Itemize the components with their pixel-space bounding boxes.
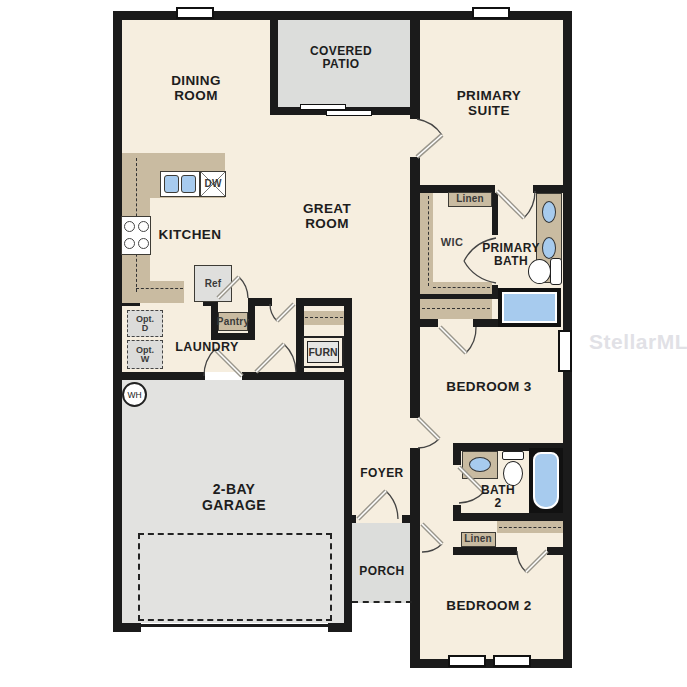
opt-washer-box: Opt. W — [127, 340, 163, 369]
room-label-bath2: BATH 2 — [481, 484, 515, 511]
window — [448, 655, 486, 667]
furnace-unit: FURN — [302, 336, 344, 368]
wall — [453, 513, 563, 521]
opt-washer-label: Opt. W — [136, 346, 154, 364]
linen-bottom-label: Linen — [464, 533, 492, 544]
toilet-tank — [550, 258, 562, 285]
opt-dryer-box: Opt. D — [127, 310, 163, 337]
wall — [113, 623, 141, 632]
wall — [412, 659, 572, 668]
refrigerator-label: Ref — [205, 278, 222, 289]
garage-door-line — [141, 624, 328, 627]
shelf-dash — [433, 287, 490, 288]
wall — [242, 372, 352, 380]
wic-shelf — [420, 282, 492, 294]
room-label-dining: DINING ROOM — [171, 73, 221, 103]
wic-shelf — [420, 193, 433, 294]
hall-closet-shelf — [420, 299, 492, 319]
wall — [328, 623, 352, 632]
garage-door-dashed — [138, 533, 332, 621]
burner — [138, 221, 149, 232]
wall — [533, 185, 563, 193]
shower-pan — [502, 292, 557, 323]
shelf-dash — [422, 308, 490, 309]
room-label-kitchen: KITCHEN — [159, 227, 222, 242]
room-label-laundry: LAUNDRY — [175, 340, 238, 354]
vanity-sink — [469, 457, 491, 472]
wall — [113, 372, 205, 380]
wall — [344, 380, 352, 632]
window — [472, 7, 510, 19]
window — [176, 7, 214, 19]
floor-plan: FURN Opt. D Opt. W WH — [0, 0, 687, 687]
room-label-primary-bath: PRIMARY BATH — [482, 242, 540, 269]
wall — [547, 547, 563, 555]
wall — [410, 448, 420, 668]
linen-top-label: Linen — [456, 193, 484, 204]
bathtub-basin — [533, 452, 559, 509]
shelf-dash — [499, 527, 561, 528]
wall — [473, 319, 500, 327]
wall — [402, 515, 410, 523]
sink-basin — [181, 175, 196, 193]
sink-basin — [164, 175, 179, 193]
wall — [453, 451, 461, 465]
burner — [124, 238, 135, 249]
wall — [113, 11, 122, 632]
wall — [270, 11, 278, 115]
wall — [410, 11, 420, 119]
water-heater: WH — [122, 382, 147, 407]
counter-edge-dash — [136, 288, 183, 289]
wall — [492, 193, 498, 235]
wall — [344, 515, 356, 523]
room-label-bedroom2: BEDROOM 2 — [446, 598, 531, 613]
water-heater-label: WH — [127, 390, 141, 400]
window — [558, 330, 572, 372]
window — [493, 655, 531, 667]
opt-dryer-label: Opt. D — [136, 315, 154, 333]
toilet-tank — [502, 451, 524, 460]
wall — [211, 333, 255, 340]
sliding-door — [326, 110, 372, 116]
wall — [344, 306, 352, 372]
dishwasher-label: DW — [204, 178, 221, 189]
room-label-great-room: GREAT ROOM — [303, 201, 351, 231]
wall — [296, 298, 352, 306]
furnace-closet-shelf — [304, 311, 344, 325]
shelf-dash — [305, 317, 343, 318]
shelf-dash — [428, 196, 429, 286]
room-label-porch: PORCH — [359, 565, 404, 578]
room-label-wic: WIC — [441, 236, 464, 248]
porch-area — [352, 523, 412, 603]
vanity-sink — [542, 237, 556, 259]
kitchen-counter — [122, 281, 184, 303]
wall — [453, 547, 517, 555]
room-label-garage: 2-BAY GARAGE — [202, 482, 266, 513]
porch-edge-dash — [352, 601, 412, 603]
pantry-label: Pantry — [217, 316, 249, 327]
furnace-label: FURN — [308, 347, 337, 358]
room-label-foyer: FOYER — [360, 467, 403, 480]
wall — [410, 319, 438, 327]
room-label-bedroom3: BEDROOM 3 — [446, 379, 531, 394]
wall — [410, 157, 420, 418]
stellar-mls-watermark: StellarMLS — [589, 330, 687, 354]
room-label-covered-patio: COVERED PATIO — [310, 45, 372, 72]
burner — [138, 238, 149, 249]
burner — [124, 221, 135, 232]
vanity-sink — [542, 201, 556, 223]
room-label-primary-suite: PRIMARY SUITE — [457, 88, 522, 118]
